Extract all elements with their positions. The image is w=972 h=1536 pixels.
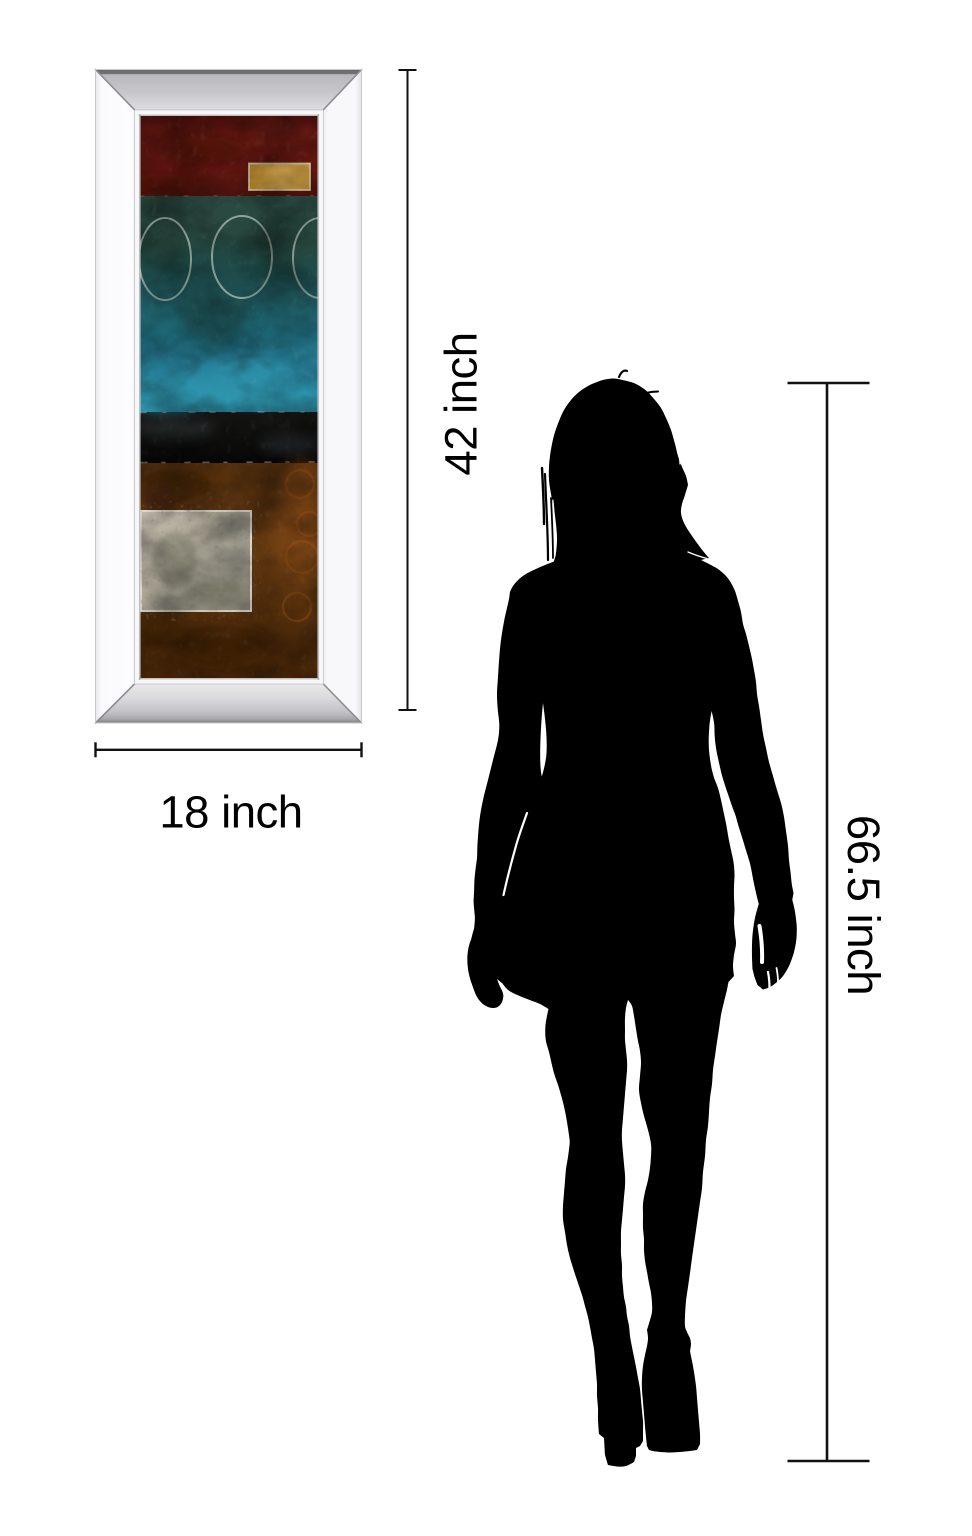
svg-text:66.5 inch: 66.5 inch [838,815,889,995]
svg-text:42 inch: 42 inch [436,332,487,475]
svg-text:18 inch: 18 inch [159,787,302,838]
